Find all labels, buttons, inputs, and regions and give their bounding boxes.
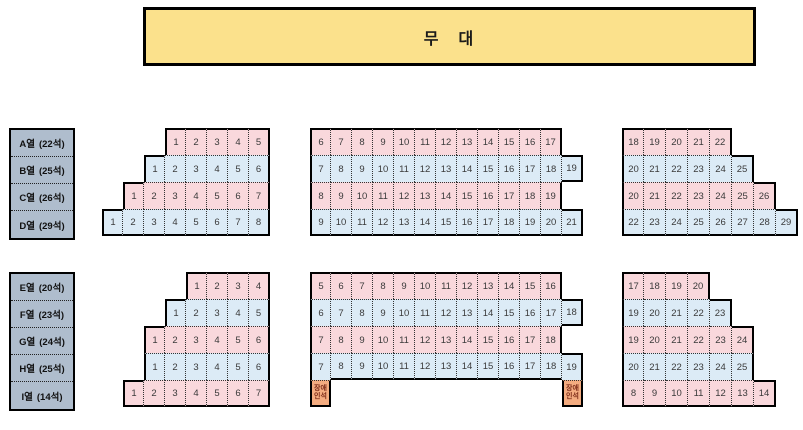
seat-I-11[interactable]: 11 (688, 380, 710, 407)
seat-B-1[interactable]: 1 (144, 155, 165, 182)
seat-I-3[interactable]: 3 (165, 380, 186, 407)
seat-B-15[interactable]: 15 (478, 155, 499, 182)
seat-B-2[interactable]: 2 (165, 155, 186, 182)
seat-I-14[interactable]: 14 (754, 380, 776, 407)
seat-A-19[interactable]: 19 (644, 128, 666, 155)
legend-seat-count: (23석) (38, 307, 64, 321)
seat-D-9[interactable]: 9 (310, 209, 331, 236)
seat-D-21[interactable]: 21 (562, 209, 583, 236)
seat-D-26[interactable]: 26 (710, 209, 732, 236)
legend-row-H: H열(25석) (11, 355, 73, 382)
seat-F-1[interactable]: 1 (165, 299, 186, 326)
seat-G-5[interactable]: 5 (228, 326, 249, 353)
seat-D-29[interactable]: 29 (776, 209, 798, 236)
legend-seat-count: (25석) (39, 163, 65, 177)
seat-A-2[interactable]: 2 (186, 128, 207, 155)
legend-row-name: B열 (19, 163, 35, 177)
seat-G-2[interactable]: 2 (165, 326, 186, 353)
seat-F-12[interactable]: 12 (436, 299, 457, 326)
legend-row-name: H열 (19, 361, 35, 375)
seat-D-23[interactable]: 23 (644, 209, 666, 236)
seat-H-20[interactable]: 20 (622, 353, 644, 380)
seat-E-18[interactable]: 18 (644, 272, 666, 299)
seat-D-28[interactable]: 28 (754, 209, 776, 236)
seat-C-15[interactable]: 15 (457, 182, 478, 209)
seat-C-4[interactable]: 4 (186, 182, 207, 209)
seat-A-15[interactable]: 15 (499, 128, 520, 155)
seat-A-11[interactable]: 11 (415, 128, 436, 155)
seat-D-1[interactable]: 1 (102, 209, 123, 236)
seat-E-6[interactable]: 6 (331, 272, 352, 299)
seat-C-16[interactable]: 16 (478, 182, 499, 209)
seat-A-17[interactable]: 17 (541, 128, 562, 155)
seat-D-12[interactable]: 12 (373, 209, 394, 236)
legend-seat-count: (20석) (39, 280, 65, 294)
legend-seat-count: (14석) (37, 389, 63, 403)
legend-row-C: C열(26석) (11, 184, 73, 211)
seat-D-6[interactable]: 6 (207, 209, 228, 236)
seat-C-26[interactable]: 26 (754, 182, 776, 209)
seat-E-7[interactable]: 7 (352, 272, 373, 299)
seat-G-3[interactable]: 3 (186, 326, 207, 353)
seat-H-14[interactable]: 14 (457, 353, 478, 380)
seat-A-16[interactable]: 16 (520, 128, 541, 155)
seat-C-11[interactable]: 11 (373, 182, 394, 209)
seat-F-13[interactable]: 13 (457, 299, 478, 326)
seat-H-12[interactable]: 12 (415, 353, 436, 380)
seat-A-22[interactable]: 22 (710, 128, 732, 155)
seat-D-7[interactable]: 7 (228, 209, 249, 236)
seat-D-2[interactable]: 2 (123, 209, 144, 236)
seat-C-21[interactable]: 21 (644, 182, 666, 209)
seat-I-9[interactable]: 9 (644, 380, 666, 407)
seat-D-14[interactable]: 14 (415, 209, 436, 236)
seat-G-16[interactable]: 16 (499, 326, 520, 353)
seat-C-24[interactable]: 24 (710, 182, 732, 209)
seat-G-21[interactable]: 21 (666, 326, 688, 353)
seat-G-1[interactable]: 1 (144, 326, 165, 353)
seat-E-20[interactable]: 20 (688, 272, 710, 299)
seat-C-13[interactable]: 13 (415, 182, 436, 209)
seat-G-4[interactable]: 4 (207, 326, 228, 353)
seat-G-15[interactable]: 15 (478, 326, 499, 353)
seat-E-4[interactable]: 4 (249, 272, 270, 299)
seat-G-8[interactable]: 8 (331, 326, 352, 353)
seat-D-27[interactable]: 27 (732, 209, 754, 236)
seat-A-18[interactable]: 18 (622, 128, 644, 155)
seat-A-1[interactable]: 1 (165, 128, 186, 155)
seat-H-21[interactable]: 21 (644, 353, 666, 380)
seat-F-4[interactable]: 4 (228, 299, 249, 326)
seat-D-19[interactable]: 19 (520, 209, 541, 236)
seat-C-19[interactable]: 19 (541, 182, 562, 209)
legend-row-name: D열 (19, 218, 35, 232)
seat-H-16[interactable]: 16 (499, 353, 520, 380)
seat-D-20[interactable]: 20 (541, 209, 562, 236)
stage: 무 대 (143, 7, 756, 66)
legend-row-name: E열 (20, 280, 35, 294)
seat-B-11[interactable]: 11 (394, 155, 415, 182)
seat-A-14[interactable]: 14 (478, 128, 499, 155)
seat-C-17[interactable]: 17 (499, 182, 520, 209)
legend-row-name: F열 (20, 307, 35, 321)
seat-G-14[interactable]: 14 (457, 326, 478, 353)
row-legend-top: A열(22석)B열(25석)C열(26석)D열(29석) (9, 128, 75, 240)
seat-H-7[interactable]: 7 (310, 353, 331, 380)
seat-E-10[interactable]: 10 (415, 272, 436, 299)
seat-H-8[interactable]: 8 (331, 353, 352, 380)
seat-F-7[interactable]: 7 (331, 299, 352, 326)
seat-B-6[interactable]: 6 (249, 155, 270, 182)
legend-seat-count: (26석) (39, 190, 65, 204)
seat-F-9[interactable]: 9 (373, 299, 394, 326)
seat-G-20[interactable]: 20 (644, 326, 666, 353)
seat-E-14[interactable]: 14 (499, 272, 520, 299)
seat-G-13[interactable]: 13 (436, 326, 457, 353)
seat-F-2[interactable]: 2 (186, 299, 207, 326)
legend-seat-count: (22석) (39, 136, 65, 150)
seat-B-23[interactable]: 23 (688, 155, 710, 182)
seat-F-23[interactable]: 23 (710, 299, 732, 326)
seat-B-17[interactable]: 17 (520, 155, 541, 182)
seat-G-10[interactable]: 10 (373, 326, 394, 353)
seat-D-3[interactable]: 3 (144, 209, 165, 236)
seat-B-18[interactable]: 18 (541, 155, 562, 182)
seat-E-19[interactable]: 19 (666, 272, 688, 299)
seat-B-7[interactable]: 7 (310, 155, 331, 182)
seat-A-6[interactable]: 6 (310, 128, 331, 155)
seat-D-25[interactable]: 25 (688, 209, 710, 236)
seat-D-10[interactable]: 10 (331, 209, 352, 236)
seat-A-3[interactable]: 3 (207, 128, 228, 155)
seat-C-14[interactable]: 14 (436, 182, 457, 209)
seat-A-12[interactable]: 12 (436, 128, 457, 155)
seat-C-2[interactable]: 2 (144, 182, 165, 209)
seat-block-bottom-right: 1718192019202122231920212223242021222324… (622, 272, 776, 407)
seat-C-9[interactable]: 9 (331, 182, 352, 209)
seat-F-6[interactable]: 6 (310, 299, 331, 326)
seat-D-24[interactable]: 24 (666, 209, 688, 236)
seat-B-19[interactable]: 19 (562, 155, 583, 182)
seat-A-21[interactable]: 21 (688, 128, 710, 155)
seat-B-20[interactable]: 20 (622, 155, 644, 182)
seat-B-8[interactable]: 8 (331, 155, 352, 182)
seat-H-18[interactable]: 18 (541, 353, 562, 380)
seat-F-15[interactable]: 15 (499, 299, 520, 326)
seat-I-4[interactable]: 4 (186, 380, 207, 407)
seat-block-top-left: 12345123456123456712345678 (102, 128, 270, 236)
legend-row-D: D열(29석) (11, 211, 73, 238)
seat-E-1[interactable]: 1 (186, 272, 207, 299)
legend-row-A: A열(22석) (11, 130, 73, 157)
seat-G-17[interactable]: 17 (520, 326, 541, 353)
seat-G-18[interactable]: 18 (541, 326, 562, 353)
seat-C-7[interactable]: 7 (249, 182, 270, 209)
seat-B-24[interactable]: 24 (710, 155, 732, 182)
legend-row-F: F열(23석) (11, 301, 73, 328)
seat-C-22[interactable]: 22 (666, 182, 688, 209)
seat-B-9[interactable]: 9 (352, 155, 373, 182)
seat-D-15[interactable]: 15 (436, 209, 457, 236)
legend-row-name: A열 (19, 136, 35, 150)
seat-E-16[interactable]: 16 (541, 272, 562, 299)
seat-A-9[interactable]: 9 (373, 128, 394, 155)
legend-row-E: E열(20석) (11, 274, 73, 301)
seat-E-5[interactable]: 5 (310, 272, 331, 299)
seat-C-10[interactable]: 10 (352, 182, 373, 209)
seat-I-disabled[interactable]: 장애인석 (310, 380, 331, 407)
seat-C-8[interactable]: 8 (310, 182, 331, 209)
seat-F-8[interactable]: 8 (352, 299, 373, 326)
seat-C-20[interactable]: 20 (622, 182, 644, 209)
seat-E-17[interactable]: 17 (622, 272, 644, 299)
seat-F-20[interactable]: 20 (644, 299, 666, 326)
seat-A-5[interactable]: 5 (249, 128, 270, 155)
seat-I-1[interactable]: 1 (123, 380, 144, 407)
seat-G-12[interactable]: 12 (415, 326, 436, 353)
seat-E-15[interactable]: 15 (520, 272, 541, 299)
seat-C-1[interactable]: 1 (123, 182, 144, 209)
seat-B-5[interactable]: 5 (228, 155, 249, 182)
seat-block-bottom-left: 1234123451234561234561234567 (123, 272, 270, 407)
seat-F-21[interactable]: 21 (666, 299, 688, 326)
seat-B-4[interactable]: 4 (207, 155, 228, 182)
seat-H-10[interactable]: 10 (373, 353, 394, 380)
seat-C-5[interactable]: 5 (207, 182, 228, 209)
seat-C-18[interactable]: 18 (520, 182, 541, 209)
seat-B-13[interactable]: 13 (436, 155, 457, 182)
seat-A-13[interactable]: 13 (457, 128, 478, 155)
seat-H-22[interactable]: 22 (666, 353, 688, 380)
seat-F-5[interactable]: 5 (249, 299, 270, 326)
seat-I-7[interactable]: 7 (249, 380, 270, 407)
seat-A-8[interactable]: 8 (352, 128, 373, 155)
legend-row-name: I열 (21, 389, 32, 403)
seat-I-disabled[interactable]: 장애인석 (562, 380, 583, 407)
seat-F-11[interactable]: 11 (415, 299, 436, 326)
seat-F-14[interactable]: 14 (478, 299, 499, 326)
seat-B-10[interactable]: 10 (373, 155, 394, 182)
seat-E-13[interactable]: 13 (478, 272, 499, 299)
seat-H-17[interactable]: 17 (520, 353, 541, 380)
seat-H-4[interactable]: 4 (207, 353, 228, 380)
seat-I-13[interactable]: 13 (732, 380, 754, 407)
seat-E-2[interactable]: 2 (207, 272, 228, 299)
seat-B-3[interactable]: 3 (186, 155, 207, 182)
seat-block-top-center: 6789101112131415161778910111213141516171… (310, 128, 583, 236)
seating-chart: { "stage": { "label": "무 대" }, "colors":… (0, 0, 803, 430)
seat-E-12[interactable]: 12 (457, 272, 478, 299)
seat-D-5[interactable]: 5 (186, 209, 207, 236)
seat-G-24[interactable]: 24 (732, 326, 754, 353)
seat-G-11[interactable]: 11 (394, 326, 415, 353)
legend-row-B: B열(25석) (11, 157, 73, 184)
legend-row-I: I열(14석) (11, 382, 73, 409)
seat-B-16[interactable]: 16 (499, 155, 520, 182)
seat-H-19[interactable]: 19 (562, 353, 583, 380)
seat-F-10[interactable]: 10 (394, 299, 415, 326)
seat-D-8[interactable]: 8 (249, 209, 270, 236)
seat-E-9[interactable]: 9 (394, 272, 415, 299)
seat-F-22[interactable]: 22 (688, 299, 710, 326)
seat-H-1[interactable]: 1 (144, 353, 165, 380)
seat-H-5[interactable]: 5 (228, 353, 249, 380)
seat-H-6[interactable]: 6 (249, 353, 270, 380)
seat-I-10[interactable]: 10 (666, 380, 688, 407)
legend-seat-count: (24석) (39, 334, 65, 348)
legend-seat-count: (29석) (39, 218, 65, 232)
seat-B-22[interactable]: 22 (666, 155, 688, 182)
seat-G-9[interactable]: 9 (352, 326, 373, 353)
seat-block-bottom-center: 5678910111213141516678910111213141516171… (310, 272, 583, 407)
seat-F-18[interactable]: 18 (562, 299, 583, 326)
seat-H-11[interactable]: 11 (394, 353, 415, 380)
seat-G-7[interactable]: 7 (310, 326, 331, 353)
seat-E-3[interactable]: 3 (228, 272, 249, 299)
seat-C-12[interactable]: 12 (394, 182, 415, 209)
seat-B-25[interactable]: 25 (732, 155, 754, 182)
seat-C-25[interactable]: 25 (732, 182, 754, 209)
seat-I-6[interactable]: 6 (228, 380, 249, 407)
seat-D-16[interactable]: 16 (457, 209, 478, 236)
seat-I-2[interactable]: 2 (144, 380, 165, 407)
seat-C-6[interactable]: 6 (228, 182, 249, 209)
seat-H-2[interactable]: 2 (165, 353, 186, 380)
seat-H-13[interactable]: 13 (436, 353, 457, 380)
row-legend-bottom: E열(20석)F열(23석)G열(24석)H열(25석)I열(14석) (9, 272, 75, 411)
seat-G-6[interactable]: 6 (249, 326, 270, 353)
seat-A-7[interactable]: 7 (331, 128, 352, 155)
legend-row-G: G열(24석) (11, 328, 73, 355)
seat-C-3[interactable]: 3 (165, 182, 186, 209)
seat-block-top-right: 1819202122202122232425202122232425262223… (622, 128, 798, 236)
seat-F-16[interactable]: 16 (520, 299, 541, 326)
legend-row-name: C열 (19, 190, 35, 204)
seat-H-3[interactable]: 3 (186, 353, 207, 380)
seat-I-8[interactable]: 8 (622, 380, 644, 407)
seat-H-15[interactable]: 15 (478, 353, 499, 380)
seat-G-23[interactable]: 23 (710, 326, 732, 353)
seat-H-9[interactable]: 9 (352, 353, 373, 380)
stage-label: 무 대 (424, 25, 475, 49)
seat-A-10[interactable]: 10 (394, 128, 415, 155)
seat-D-4[interactable]: 4 (165, 209, 186, 236)
seat-H-23[interactable]: 23 (688, 353, 710, 380)
legend-row-name: G열 (19, 334, 35, 348)
seat-E-11[interactable]: 11 (436, 272, 457, 299)
seat-A-4[interactable]: 4 (228, 128, 249, 155)
seat-F-3[interactable]: 3 (207, 299, 228, 326)
seat-D-11[interactable]: 11 (352, 209, 373, 236)
seat-F-17[interactable]: 17 (541, 299, 562, 326)
seat-G-19[interactable]: 19 (622, 326, 644, 353)
seat-D-18[interactable]: 18 (499, 209, 520, 236)
seat-A-20[interactable]: 20 (666, 128, 688, 155)
seat-B-21[interactable]: 21 (644, 155, 666, 182)
seat-E-8[interactable]: 8 (373, 272, 394, 299)
seat-I-12[interactable]: 12 (710, 380, 732, 407)
seat-H-25[interactable]: 25 (732, 353, 754, 380)
seat-D-13[interactable]: 13 (394, 209, 415, 236)
seat-B-14[interactable]: 14 (457, 155, 478, 182)
seat-D-17[interactable]: 17 (478, 209, 499, 236)
seat-F-19[interactable]: 19 (622, 299, 644, 326)
seat-B-12[interactable]: 12 (415, 155, 436, 182)
seat-I-5[interactable]: 5 (207, 380, 228, 407)
legend-seat-count: (25석) (39, 361, 65, 375)
seat-G-22[interactable]: 22 (688, 326, 710, 353)
seat-H-24[interactable]: 24 (710, 353, 732, 380)
seat-C-23[interactable]: 23 (688, 182, 710, 209)
seat-D-22[interactable]: 22 (622, 209, 644, 236)
